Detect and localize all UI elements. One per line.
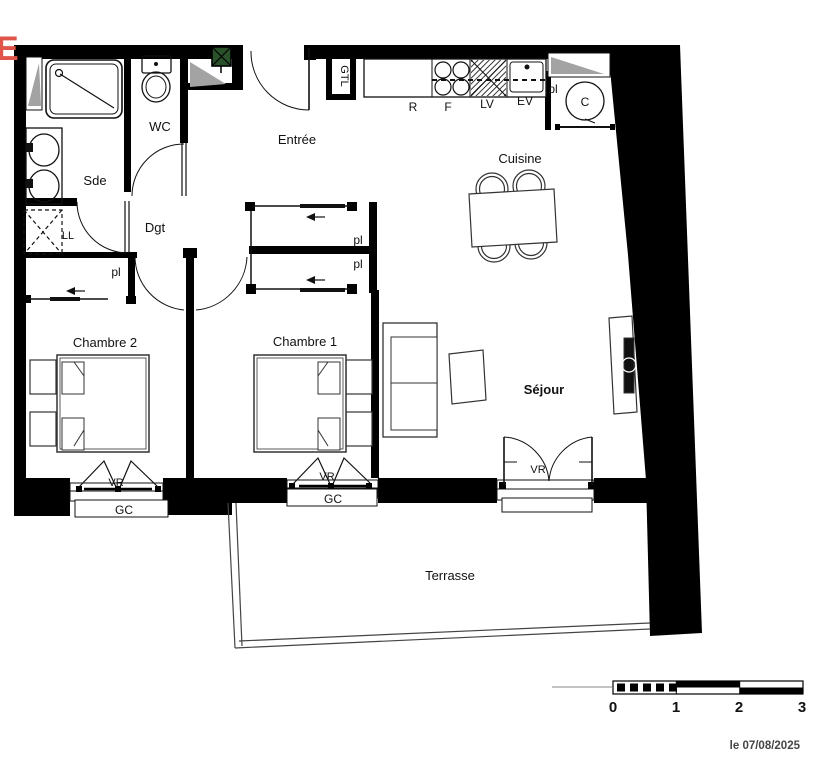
- closet-label-chambre2: pl: [111, 265, 120, 279]
- ch1-upper-closet-slider: [253, 206, 350, 221]
- room-label-sde: Sde: [83, 173, 106, 188]
- wc-right-wall: [180, 53, 188, 143]
- bottom-wall-seg2: [163, 478, 287, 503]
- room-label-entree: Entrée: [278, 132, 316, 147]
- scale-seg3-black: [740, 688, 803, 695]
- sofa: [383, 323, 437, 437]
- entrance-door: [251, 48, 309, 110]
- chambre2-closet-slider: [27, 287, 108, 299]
- room-label-cuisine: Cuisine: [498, 151, 541, 166]
- room-label-chambre2: Chambre 2: [73, 335, 137, 350]
- gtl-label: GTL: [338, 65, 350, 86]
- room-label-terrasse: Terrasse: [425, 568, 475, 583]
- floor-plan-page: Sde WC Entrée Cuisine Dgt Chambre 2 Cham…: [0, 0, 817, 761]
- scale-tick-0: 0: [609, 699, 617, 716]
- street-letter: E: [0, 30, 19, 68]
- coffee-table: [449, 350, 486, 404]
- toilet: [142, 56, 171, 102]
- scale-tick-1: 1: [672, 699, 680, 716]
- chambre2-door-arc: [135, 257, 184, 310]
- sejour-door-sill: [497, 480, 595, 512]
- chambres-divider-wall: [186, 250, 194, 490]
- bed-chambre2: [30, 355, 149, 452]
- chambres-divider-cap: [183, 248, 197, 258]
- ch1-lower-closet-slider: [255, 276, 350, 290]
- bottom-wall-seg1: [14, 478, 70, 503]
- bottom-wall-seg4: [594, 478, 655, 503]
- terrace-threshold: [502, 498, 592, 512]
- entrance-left-post: [232, 45, 243, 90]
- bottom-wall-thick1: [14, 502, 70, 516]
- duct-box: [212, 47, 231, 73]
- heater-closet-door: [555, 124, 615, 130]
- bottom-wall-thick2: [163, 502, 232, 515]
- water-heater-label: C: [581, 95, 590, 109]
- slide-arrow-left-icon: [66, 287, 75, 295]
- closet-label-entry: pl: [548, 82, 557, 96]
- slide-arrow-left-icon: [306, 276, 315, 284]
- scale-tick-2: 2: [735, 699, 743, 716]
- sink-label: EV: [517, 94, 533, 108]
- room-label-dgt: Dgt: [145, 220, 166, 235]
- ch1-closet-right-wall: [369, 202, 377, 293]
- room-label-wc: WC: [149, 119, 171, 134]
- gtl-bottom-wall: [326, 94, 356, 100]
- bottom-wall-seg3: [378, 478, 497, 503]
- washing-machine-slot: [24, 210, 62, 254]
- bed-chambre1: [254, 355, 372, 452]
- sde-door: [77, 201, 129, 253]
- gtl-left-wall: [326, 45, 332, 100]
- sejour-french-doors: [504, 437, 592, 485]
- chambre2-closet-top-wall: [20, 252, 137, 258]
- dishwasher-label: LV: [480, 97, 494, 111]
- room-label-sejour: Séjour: [524, 382, 564, 397]
- guardrail-label-chambre1: GC: [324, 492, 342, 506]
- wc-door: [132, 143, 186, 196]
- left-wall: [14, 45, 26, 507]
- scale-ticks: 0 1 2 3: [609, 699, 806, 716]
- closet-label-ch1-upper: pl: [353, 233, 362, 247]
- washer-label: LL: [62, 230, 74, 242]
- slide-arrow-left-icon: [306, 213, 315, 221]
- sde-wc-divider-wall: [124, 53, 131, 192]
- shutter-label-chambre1: VR: [319, 471, 334, 483]
- double-washbasin: [26, 128, 62, 204]
- dining-set: [469, 170, 557, 262]
- plan-date: le 07/08/2025: [730, 740, 801, 752]
- closet-label-ch1-lower: pl: [353, 257, 362, 271]
- room-label-chambre1: Chambre 1: [273, 334, 337, 349]
- furniture: [30, 170, 637, 452]
- dining-table: [469, 189, 557, 247]
- ch1-closet-mid-wall: [249, 246, 377, 254]
- guardrail-label-chambre2: GC: [115, 503, 133, 517]
- shutter-label-chambre2: VR: [108, 477, 123, 489]
- floor-plan-drawing: Sde WC Entrée Cuisine Dgt Chambre 2 Cham…: [0, 0, 817, 761]
- ch1-closet-cap3: [246, 284, 256, 294]
- scale-seg2-black: [676, 681, 739, 688]
- sde-bottom-wall: [20, 198, 77, 206]
- scale-tick-3: 3: [798, 699, 806, 716]
- fridge-label: R: [409, 100, 418, 114]
- chambre2-closet-right-cap: [126, 296, 136, 304]
- tv-unit: [609, 316, 637, 414]
- shutter-label-sejour: VR: [530, 464, 545, 476]
- chambre2-closet-right-wall: [128, 256, 135, 302]
- chambre1-door-arc: [196, 257, 247, 310]
- shower-tray: [46, 60, 122, 118]
- oven-label: F: [444, 100, 451, 114]
- entrance-hinge-post: [304, 45, 316, 60]
- scale-bar: 0 1 2 3: [552, 681, 806, 716]
